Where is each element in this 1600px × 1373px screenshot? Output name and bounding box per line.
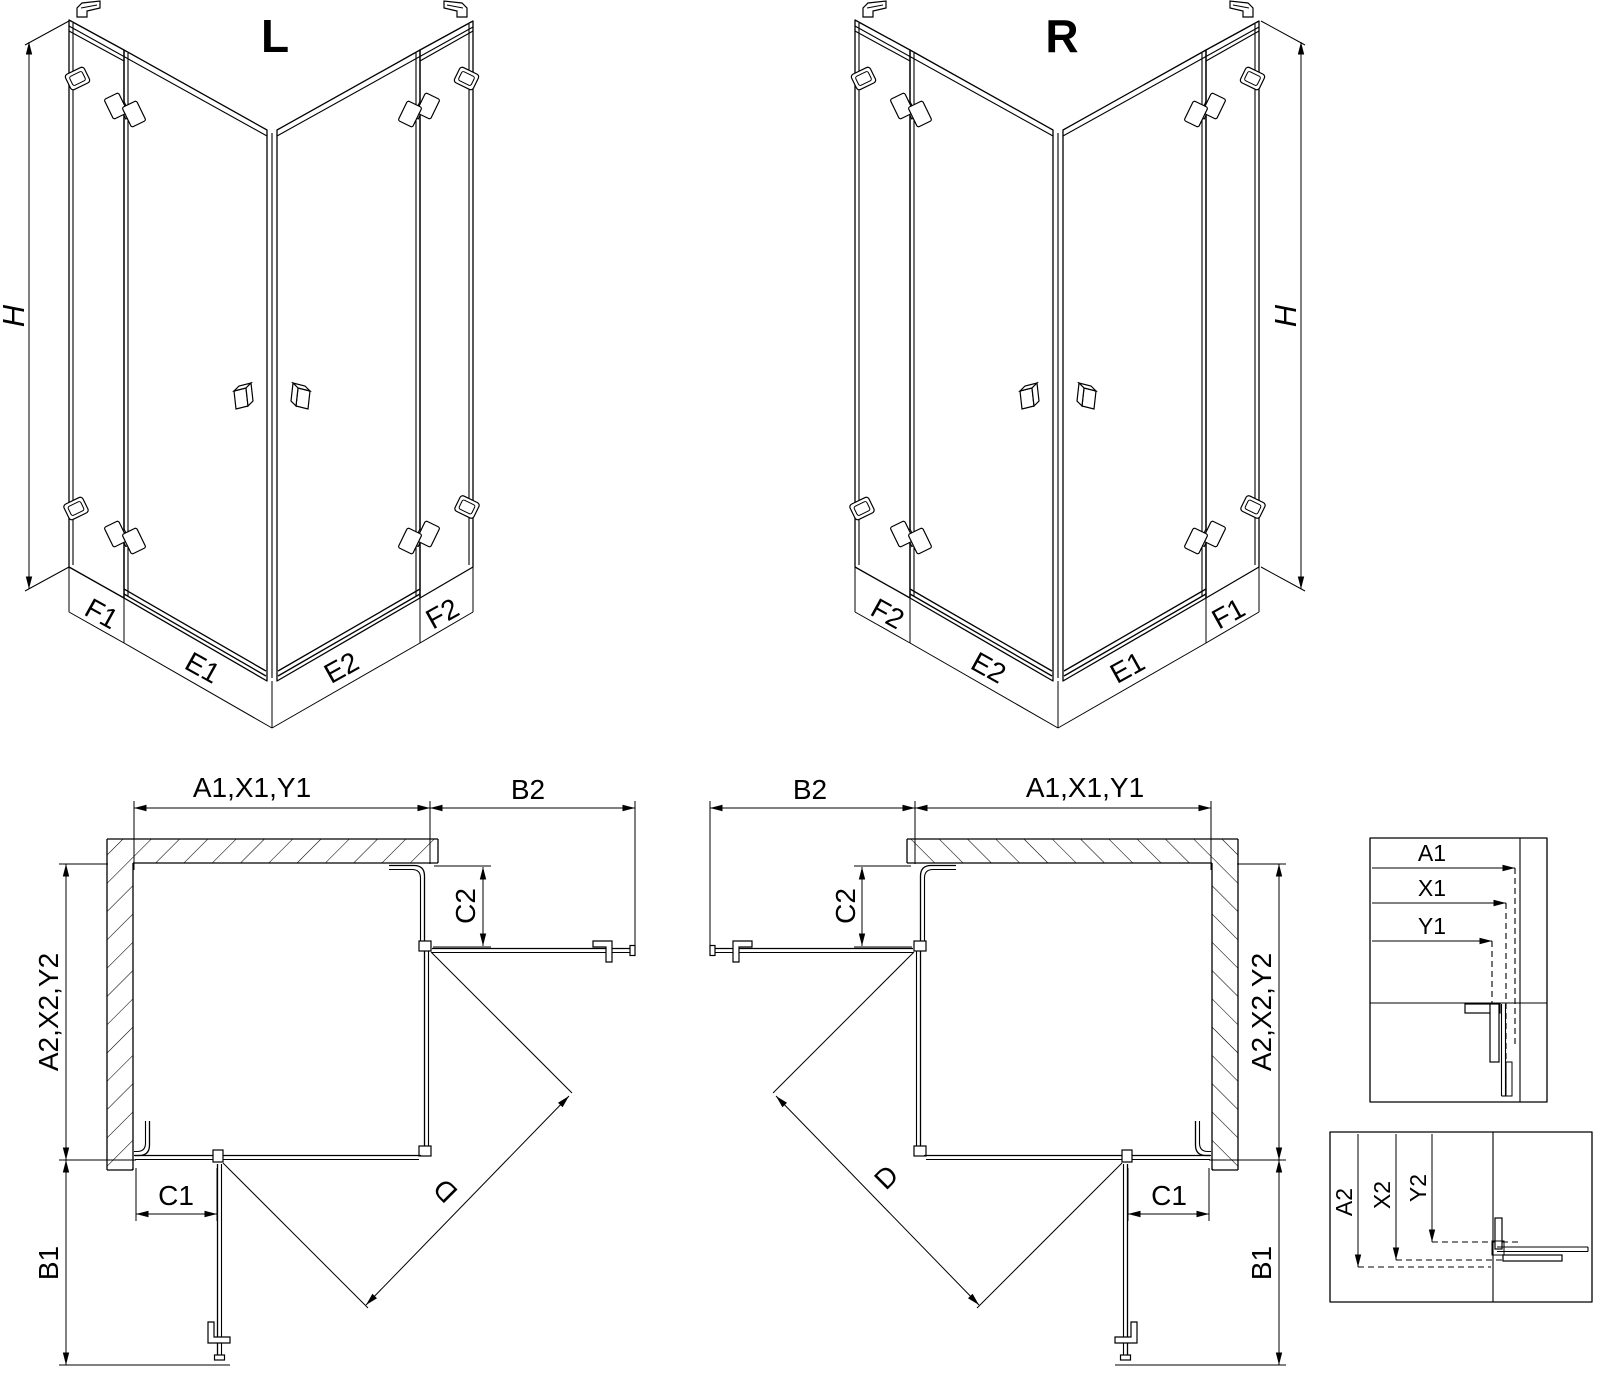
open-door-top-dim-label: B2 [511, 774, 545, 805]
sheet-background [0, 0, 1600, 1373]
width-dim-label: A1,X1,Y1 [193, 772, 311, 803]
open-door-side-dim-label: B1 [1246, 1246, 1277, 1280]
drawing-canvas: H L F1 E1 E2 F2 H R F2 E2 E1 F1 A1,X1,Y1… [0, 0, 1600, 1373]
variant-label-right: R [1045, 10, 1078, 62]
h-dim-label: H [1268, 304, 1303, 327]
open-door-top-dim-label: B2 [793, 774, 827, 805]
detail-dim-label: X1 [1418, 875, 1446, 901]
technical-drawing-sheet: H L F1 E1 E2 F2 H R F2 E2 E1 F1 A1,X1,Y1… [0, 0, 1600, 1373]
fixed-return-top-dim-label: C2 [830, 888, 861, 924]
width-dim-label: A1,X1,Y1 [1026, 772, 1144, 803]
detail-dim-label: Y2 [1405, 1174, 1431, 1202]
fixed-return-top-dim-label: C2 [450, 888, 481, 924]
variant-label-left: L [261, 10, 289, 62]
fixed-return-side-dim-label: C1 [158, 1180, 194, 1211]
detail-dim-label: A1 [1418, 840, 1446, 866]
fixed-return-side-dim-label: C1 [1151, 1180, 1187, 1211]
detail-dim-label: A2 [1331, 1188, 1357, 1216]
open-door-side-dim-label: B1 [33, 1246, 64, 1280]
depth-dim-label: A2,X2,Y2 [1246, 953, 1277, 1071]
h-dim-label: H [0, 304, 31, 327]
detail-dim-label: X2 [1369, 1181, 1395, 1209]
detail-dim-label: Y1 [1418, 913, 1446, 939]
depth-dim-label: A2,X2,Y2 [33, 953, 64, 1071]
